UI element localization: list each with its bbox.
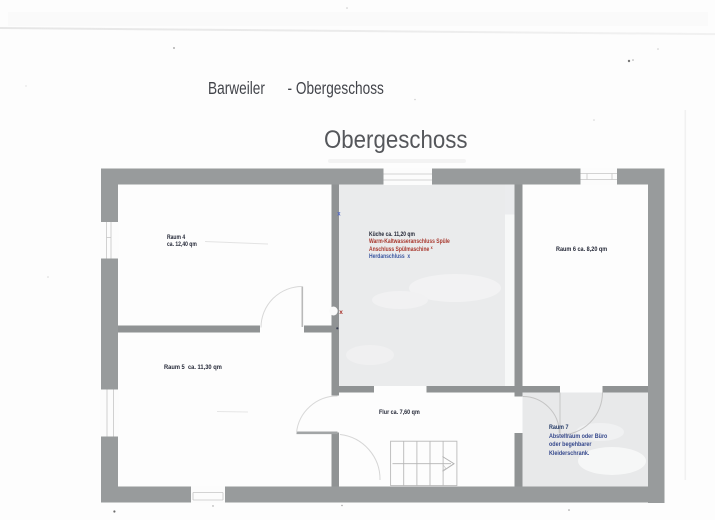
svg-text:x: x bbox=[339, 309, 343, 316]
